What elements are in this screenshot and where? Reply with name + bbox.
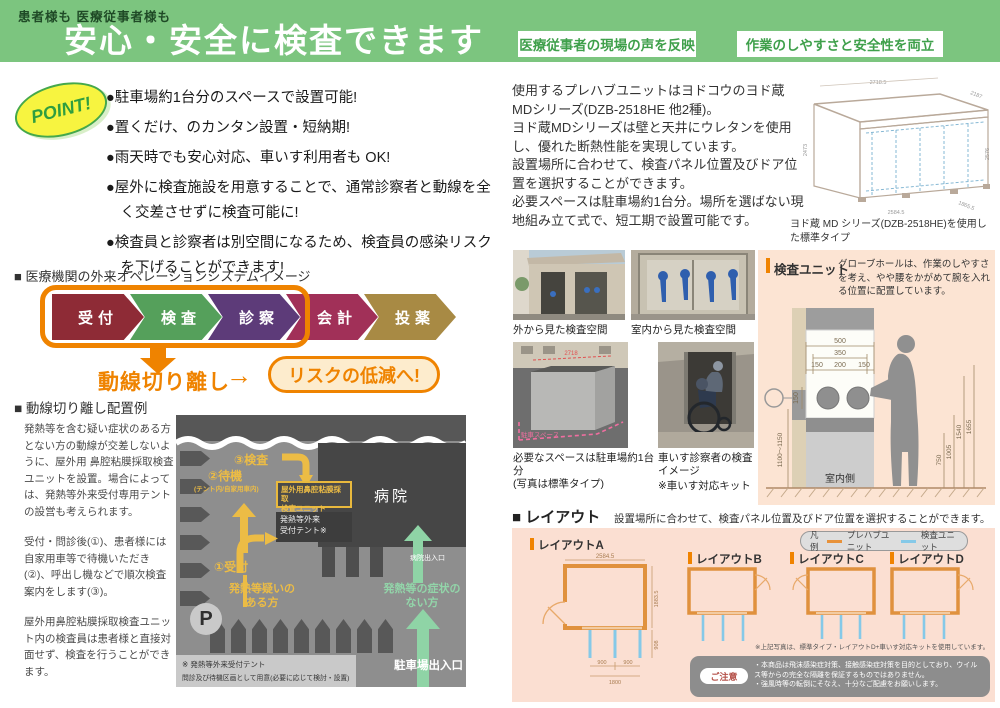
dim-label: 2718.5 (870, 80, 887, 86)
hospital-pillar (346, 547, 359, 577)
dim-label: 908 (654, 640, 660, 649)
parking-entry-arrow-icon (406, 609, 440, 687)
notice-line: ・本商品は飛沫感染症対策、接触感染症対策を目的としており、ウイルス等からの完全な… (754, 661, 984, 680)
dim-label: 1005 (946, 444, 953, 459)
photo-wheelchair-user (658, 342, 754, 448)
photo-dim-label: 2718 (564, 351, 578, 357)
example-text: 発熱等を含む疑い症状のある方とない方の動線が交差しないように、屋外用 鼻腔粘膜採… (24, 421, 176, 694)
point-item: ●屋外に検査施設を用意することで、通常診察者と動線を全く交差させずに検査可能に! (106, 176, 498, 226)
unit-info-text: 使用するプレハブユニットはヨドコウのヨド蔵MDシリーズ(DZB-2518HE 他… (512, 82, 804, 230)
legend-line-unit (901, 540, 916, 543)
parking-stall (315, 619, 330, 653)
layout-d-plan (886, 565, 981, 645)
photo-parking-space: 2718 駐車スペース (513, 342, 628, 448)
dim-label: 150 (811, 362, 823, 369)
photo-interior-view (631, 250, 755, 320)
photo-caption: 室内から見た検査空間 (631, 324, 736, 337)
flow-heading: ■ 医療機関の外来オペレーションシステムイメージ (14, 266, 311, 285)
layouts-heading: ■ レイアウト (512, 506, 600, 527)
hospital-gate-label: 病院出入口 (410, 553, 445, 563)
healthy-visitors-label: 発熱等の症状の ない方 (382, 582, 462, 610)
info-paragraph: ヨド蔵MDシリーズは壁と天井にウレタンを使用し、優れた断熱性能を実現しています。 (512, 119, 804, 156)
fever-visitors-line: ある方 (212, 596, 312, 610)
drawing-caption: ヨド蔵 MD シリーズ(DZB-2518HE)を使用した標準タイプ (790, 218, 996, 246)
info-paragraph: 必要スペースは駐車場約1台分。場所を選ばない現地組み立て式で、短工期で設置可能で… (512, 193, 804, 230)
layout-a-plan: 2584.5 1883.5 908 900 900 1800 (520, 552, 670, 697)
dim-label: 1865.5 (957, 200, 975, 212)
fever-visitors-label: 発熱等疑いの ある方 (212, 582, 312, 610)
photo-caption: 車いす診察者の検査イメージ ※車いす対応キット (658, 452, 758, 493)
parking-stall (231, 619, 246, 653)
map-footnote-line: 問診及び待機区画として用意(必要に応じて検討・設置) (182, 672, 350, 682)
photo-caption: 必要なスペースは駐車場約1台分 (写真は標準タイプ) (513, 452, 658, 491)
map-step1-label: ①受付 (214, 558, 248, 575)
inspection-unit-panel: 検査ユニット グローブホールは、作業のしやすさを考え、やや腰をかがめて腕を入れる… (758, 250, 995, 505)
dim-label: 200 (834, 362, 846, 369)
hospital-pillar (370, 547, 383, 577)
header-badge-1: 医療従事者の現場の声を反映 (518, 31, 696, 57)
dim-label: 2187 (969, 90, 983, 100)
parking-stall (180, 507, 210, 522)
point-badge: POINT! (9, 73, 113, 146)
parking-stall (252, 619, 267, 653)
flow-highlight-ring (40, 285, 310, 348)
orange-bar-icon (790, 552, 794, 564)
map-step3-label: ③検査 (234, 451, 268, 468)
inspection-description: グローブホールは、作業のしやすさを考え、やや腰をかがめて腕を入れる位置に配置して… (838, 258, 990, 299)
brochure-page: 患者様も 医療従事者様も 安心・安全に検査できます 医療従事者の現場の声を反映 … (0, 0, 1000, 708)
parking-stall (357, 619, 372, 653)
dim-label: 1800 (609, 680, 621, 686)
test-unit-box: 屋外用鼻腔粘膜採取 検査ユニット (276, 481, 352, 508)
dim-label: 2584.5 (888, 210, 905, 216)
point-item: ●置くだけ、のカンタン設置・短納期! (106, 116, 498, 141)
fever-tent-label: 受付テント※ (280, 526, 348, 537)
example-paragraph: 受付・問診後(①)、患者様には自家用車等で待機いただき(②)、呼出し機などで順次… (24, 534, 176, 600)
dim-label: 1540 (956, 424, 963, 439)
parking-stall (378, 619, 393, 653)
orange-bar-icon (530, 538, 534, 550)
flow-diagram: 受付 検査 診察 会計 投薬 (52, 294, 472, 340)
orange-bar-icon (688, 552, 692, 564)
parking-stall (180, 451, 210, 466)
right-arrow-icon: → (226, 360, 252, 391)
layouts-subheading: 設置場所に合わせて、検査パネル位置及びドア位置を選択することができます。 (614, 511, 990, 526)
layout-label-text: レイアウトA (538, 540, 604, 552)
legend-label: プレハブユニット (847, 529, 896, 553)
dim-label: 350 (834, 350, 846, 357)
legend-label: 検査ユニット (921, 529, 958, 553)
header-badge-2: 作業のしやすさと安全性を両立 (737, 31, 943, 57)
separation-label: 動線切り離し (98, 366, 230, 396)
dim-label: 2576 (985, 148, 991, 160)
parking-space-label: 駐車スペース (521, 430, 559, 439)
fever-visitors-line: 発熱等疑いの (212, 582, 312, 596)
point-item: ●駐車場約1台分のスペースで設置可能! (106, 86, 498, 111)
orange-bar-icon (890, 552, 894, 564)
notice-lines: ・本商品は飛沫感染症対策、接触感染症対策を目的としており、ウイルス等からの完全な… (754, 661, 984, 690)
dim-label: 2584.5 (596, 554, 615, 560)
dim-label: 900 (597, 660, 606, 666)
map-step2-note: (テント内/自家用車内) (194, 483, 259, 493)
layouts-footnote: ※上記写真は、標準タイプ・レイアウトD+車いす対応キットを使用しています。 (755, 641, 993, 651)
point-item: ●雨天時でも安心対応、車いす利用者も OK! (106, 146, 498, 171)
example-heading: ■ 動線切り離し配置例 (14, 397, 147, 417)
layout-b-plan (683, 565, 778, 645)
fever-tent-box: 発熱等外来 受付テント※ (276, 512, 352, 542)
example-paragraph: 屋外用鼻腔粘膜採取検査ユニット内の検査員は患者様と直接対面せず、検査を行うことが… (24, 614, 176, 680)
photo-caption: 外から見た検査空間 (513, 324, 608, 337)
parking-icon: P (190, 603, 222, 635)
parking-stall (180, 535, 210, 550)
map-step2-label: ②待機 (208, 467, 242, 484)
dim-label: 150 (793, 392, 800, 404)
header-band: 患者様も 医療従事者様も 安心・安全に検査できます 医療従事者の現場の声を反映 … (0, 0, 1000, 62)
photo-caption-line: 必要なスペースは駐車場約1台分 (513, 452, 658, 478)
test-unit-label: 屋外用鼻腔粘膜採取 (281, 485, 347, 504)
fever-tent-label: 発熱等外来 (280, 515, 348, 526)
photo-caption-line: (写真は標準タイプ) (513, 478, 658, 491)
legend-line-prefab (827, 540, 842, 543)
dim-label: 1655 (966, 419, 973, 434)
room-side-label: 室内側 (825, 472, 855, 485)
site-map: 病院 病院出入口 ③検査 ②待機 (テント内/自家用車内) (176, 415, 466, 687)
glove-hole-diagram: 500 350 150 200 150 150 1100〜1150 750 10… (758, 302, 995, 505)
prefab-technical-drawing: 2718.5 2187 2473 2576 2584.5 1865.5 (800, 70, 992, 218)
healthy-visitors-line: ない方 (382, 596, 462, 610)
parking-stall (180, 563, 210, 578)
parking-gate-label: 駐車場出入口 (394, 657, 463, 673)
dim-label: 150 (858, 362, 870, 369)
parking-stall (273, 619, 288, 653)
dim-label: 500 (834, 338, 846, 345)
info-paragraph: 設置場所に合わせて、検査パネル位置及びドア位置を選択することができます。 (512, 156, 804, 193)
parking-stall (294, 619, 309, 653)
dim-label: 750 (936, 454, 943, 465)
info-paragraph: 使用するプレハブユニットはヨドコウのヨド蔵MDシリーズ(DZB-2518HE 他… (512, 82, 804, 119)
dim-label: 900 (623, 660, 632, 666)
notice-line: ・強風時等の転倒にそなえ、十分なご配慮をお願いします。 (754, 680, 984, 690)
parking-stall (336, 619, 351, 653)
layout-a-label: レイアウトA (530, 537, 604, 553)
notice-title: ご注意 (700, 668, 748, 684)
layout-c-plan (786, 565, 881, 645)
legend: 凡例 プレハブユニット 検査ユニット (800, 531, 968, 551)
photo-caption-line: 車いす診察者の検査イメージ (658, 452, 758, 478)
dim-label: 1100〜1150 (777, 432, 784, 467)
dim-label: 1883.5 (654, 591, 660, 608)
page-title: 安心・安全に検査できます (64, 14, 484, 62)
legend-title: 凡例 (810, 529, 822, 553)
map-footnote-line: ※ 発熱等外来受付テント (182, 659, 350, 670)
example-paragraph: 発熱等を含む疑い症状のある方とない方の動線が交差しないように、屋外用 鼻腔粘膜採… (24, 421, 176, 520)
point-list: ●駐車場約1台分のスペースで設置可能! ●置くだけ、のカンタン設置・短納期! ●… (106, 86, 498, 286)
photo-exterior-view (513, 250, 625, 320)
photo-caption-note: ※車いす対応キット (658, 480, 758, 493)
result-box: リスクの低減へ! (268, 356, 440, 393)
hospital-pillar (322, 547, 335, 577)
map-footnote: ※ 発熱等外来受付テント 問診及び待機区画として用意(必要に応じて検討・設置) (176, 655, 356, 687)
dim-label: 2473 (803, 144, 809, 156)
notice-box: ご注意 ・本商品は飛沫感染症対策、接触感染症対策を目的としており、ウイルス等から… (690, 656, 990, 697)
healthy-visitors-line: 発熱等の症状の (382, 582, 462, 596)
orange-bar-icon (766, 258, 770, 273)
